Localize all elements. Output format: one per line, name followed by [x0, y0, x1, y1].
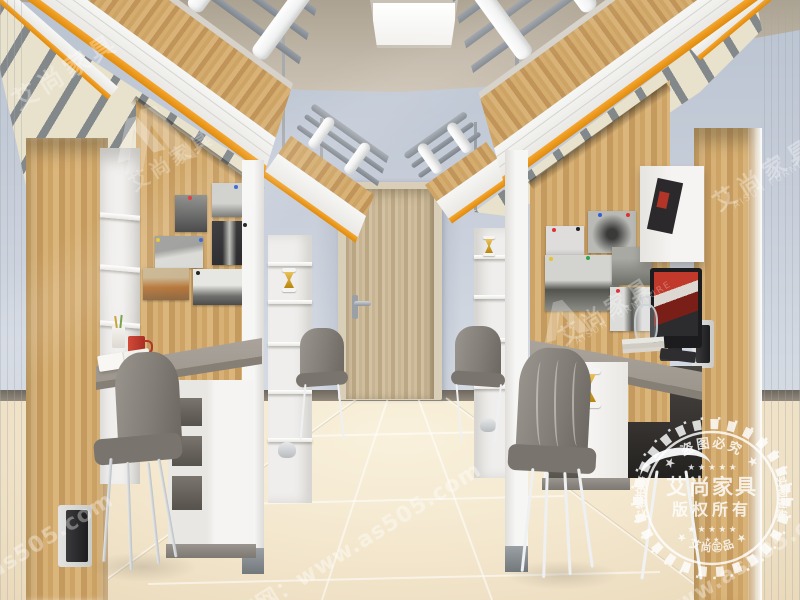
ceiling-light-panel: [370, 0, 458, 48]
pinned-photo: [175, 195, 207, 232]
push-pin: [243, 223, 247, 227]
chair-back-slot: [572, 362, 582, 446]
door-handle: [354, 301, 371, 306]
decanter-neck: [641, 296, 651, 308]
hourglass-icon: [483, 236, 495, 239]
chair-back-slot: [536, 362, 546, 446]
monitor-screen: [654, 272, 698, 336]
kettle: [480, 418, 496, 432]
door-handle-plate: [352, 295, 358, 319]
push-pin: [199, 238, 203, 242]
bookcase-slot: [172, 476, 202, 510]
push-pin: [188, 196, 192, 200]
kettle: [278, 442, 296, 458]
stamp-brand-text: 艾尚家具: [666, 475, 758, 499]
dorm-room-photo: 艾尚家具 艾尚家具 艾尚家具 AISUN FURNITURE 艾尚家具 AISU…: [0, 0, 800, 600]
push-pin: [234, 185, 238, 189]
right-bed-post: [505, 150, 528, 548]
push-pin: [598, 213, 602, 217]
push-pin: [626, 213, 630, 217]
push-pin: [616, 289, 620, 293]
left-wall-column: [0, 0, 28, 600]
push-pin: [552, 228, 556, 232]
pinned-photo: [143, 268, 189, 300]
hourglass-base: [483, 253, 495, 256]
bookcase-base: [166, 544, 256, 558]
shelf-board: [268, 262, 312, 266]
push-pin: [156, 238, 160, 242]
hourglass-icon: [282, 268, 296, 272]
chair-back-slot: [554, 360, 564, 448]
stamp-stars-small: ★ ★: [705, 536, 720, 544]
stamp-copyright-text: 版权所有: [671, 500, 752, 519]
shelf-board: [474, 295, 508, 299]
bookcase-base: [542, 478, 630, 490]
hourglass-base: [282, 288, 296, 292]
push-pin: [196, 271, 200, 275]
push-pin: [586, 256, 590, 260]
stamp-stars-bottom: ★ ★ ★ ★ ★: [688, 525, 737, 535]
stamp-stars-top: ★ ★ ★ ★ ★: [688, 463, 737, 473]
pinned-photo: [193, 269, 247, 305]
shelf-board: [268, 438, 312, 442]
pencil-cup: [112, 326, 125, 348]
left-wardrobe-handle-recess: [66, 510, 88, 562]
push-pin: [576, 227, 580, 231]
pinned-photo: [155, 236, 203, 268]
chair-seat: [507, 444, 596, 475]
copyright-stamp-watermark: ★ 盗图必究 ★ ★ 艾尚㊣品 ★ 实物拍摄 实物拍摄 ★ ★ ★ ★ ★ 艾尚…: [622, 408, 800, 588]
push-pin: [549, 257, 553, 261]
shelf-board: [268, 300, 312, 304]
